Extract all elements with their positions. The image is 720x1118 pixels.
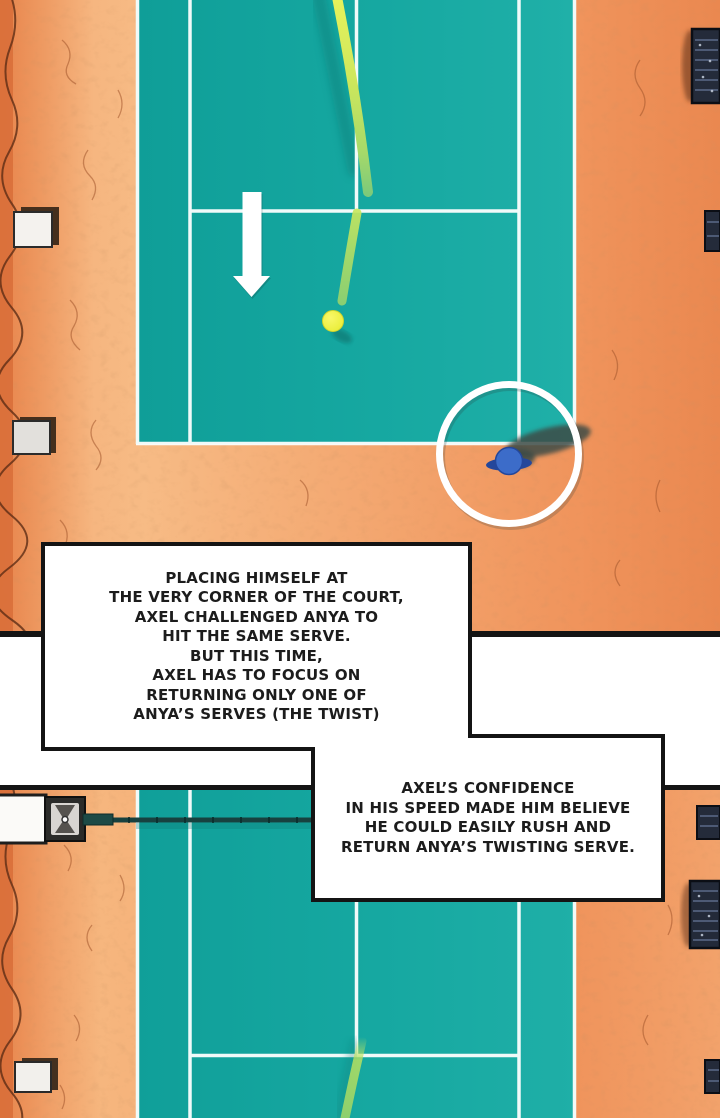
bench-right-mid [681, 881, 720, 948]
narration-box-1-text: PLACING HIMSELF AT THE VERY CORNER OF TH… [43, 544, 470, 749]
bench-right-mid [705, 211, 720, 251]
tennis-ball [323, 311, 344, 332]
equipment-box [0, 795, 46, 843]
bench-right-bottom [705, 1060, 720, 1093]
bench-right-top [697, 806, 720, 839]
net-tension-bar [83, 814, 113, 825]
bench-left-top [14, 207, 59, 247]
bench-left [15, 1058, 58, 1092]
panel-top-court [0, 0, 720, 637]
bench-left-bottom [13, 417, 56, 454]
narration-box-2-text: AXEL’S CONFIDENCE IN HIS SPEED MADE HIM … [313, 736, 663, 900]
comic-page: PLACING HIMSELF AT THE VERY CORNER OF TH… [0, 0, 720, 1118]
net-crank-hub [62, 817, 68, 823]
bench-right-top [682, 29, 720, 103]
